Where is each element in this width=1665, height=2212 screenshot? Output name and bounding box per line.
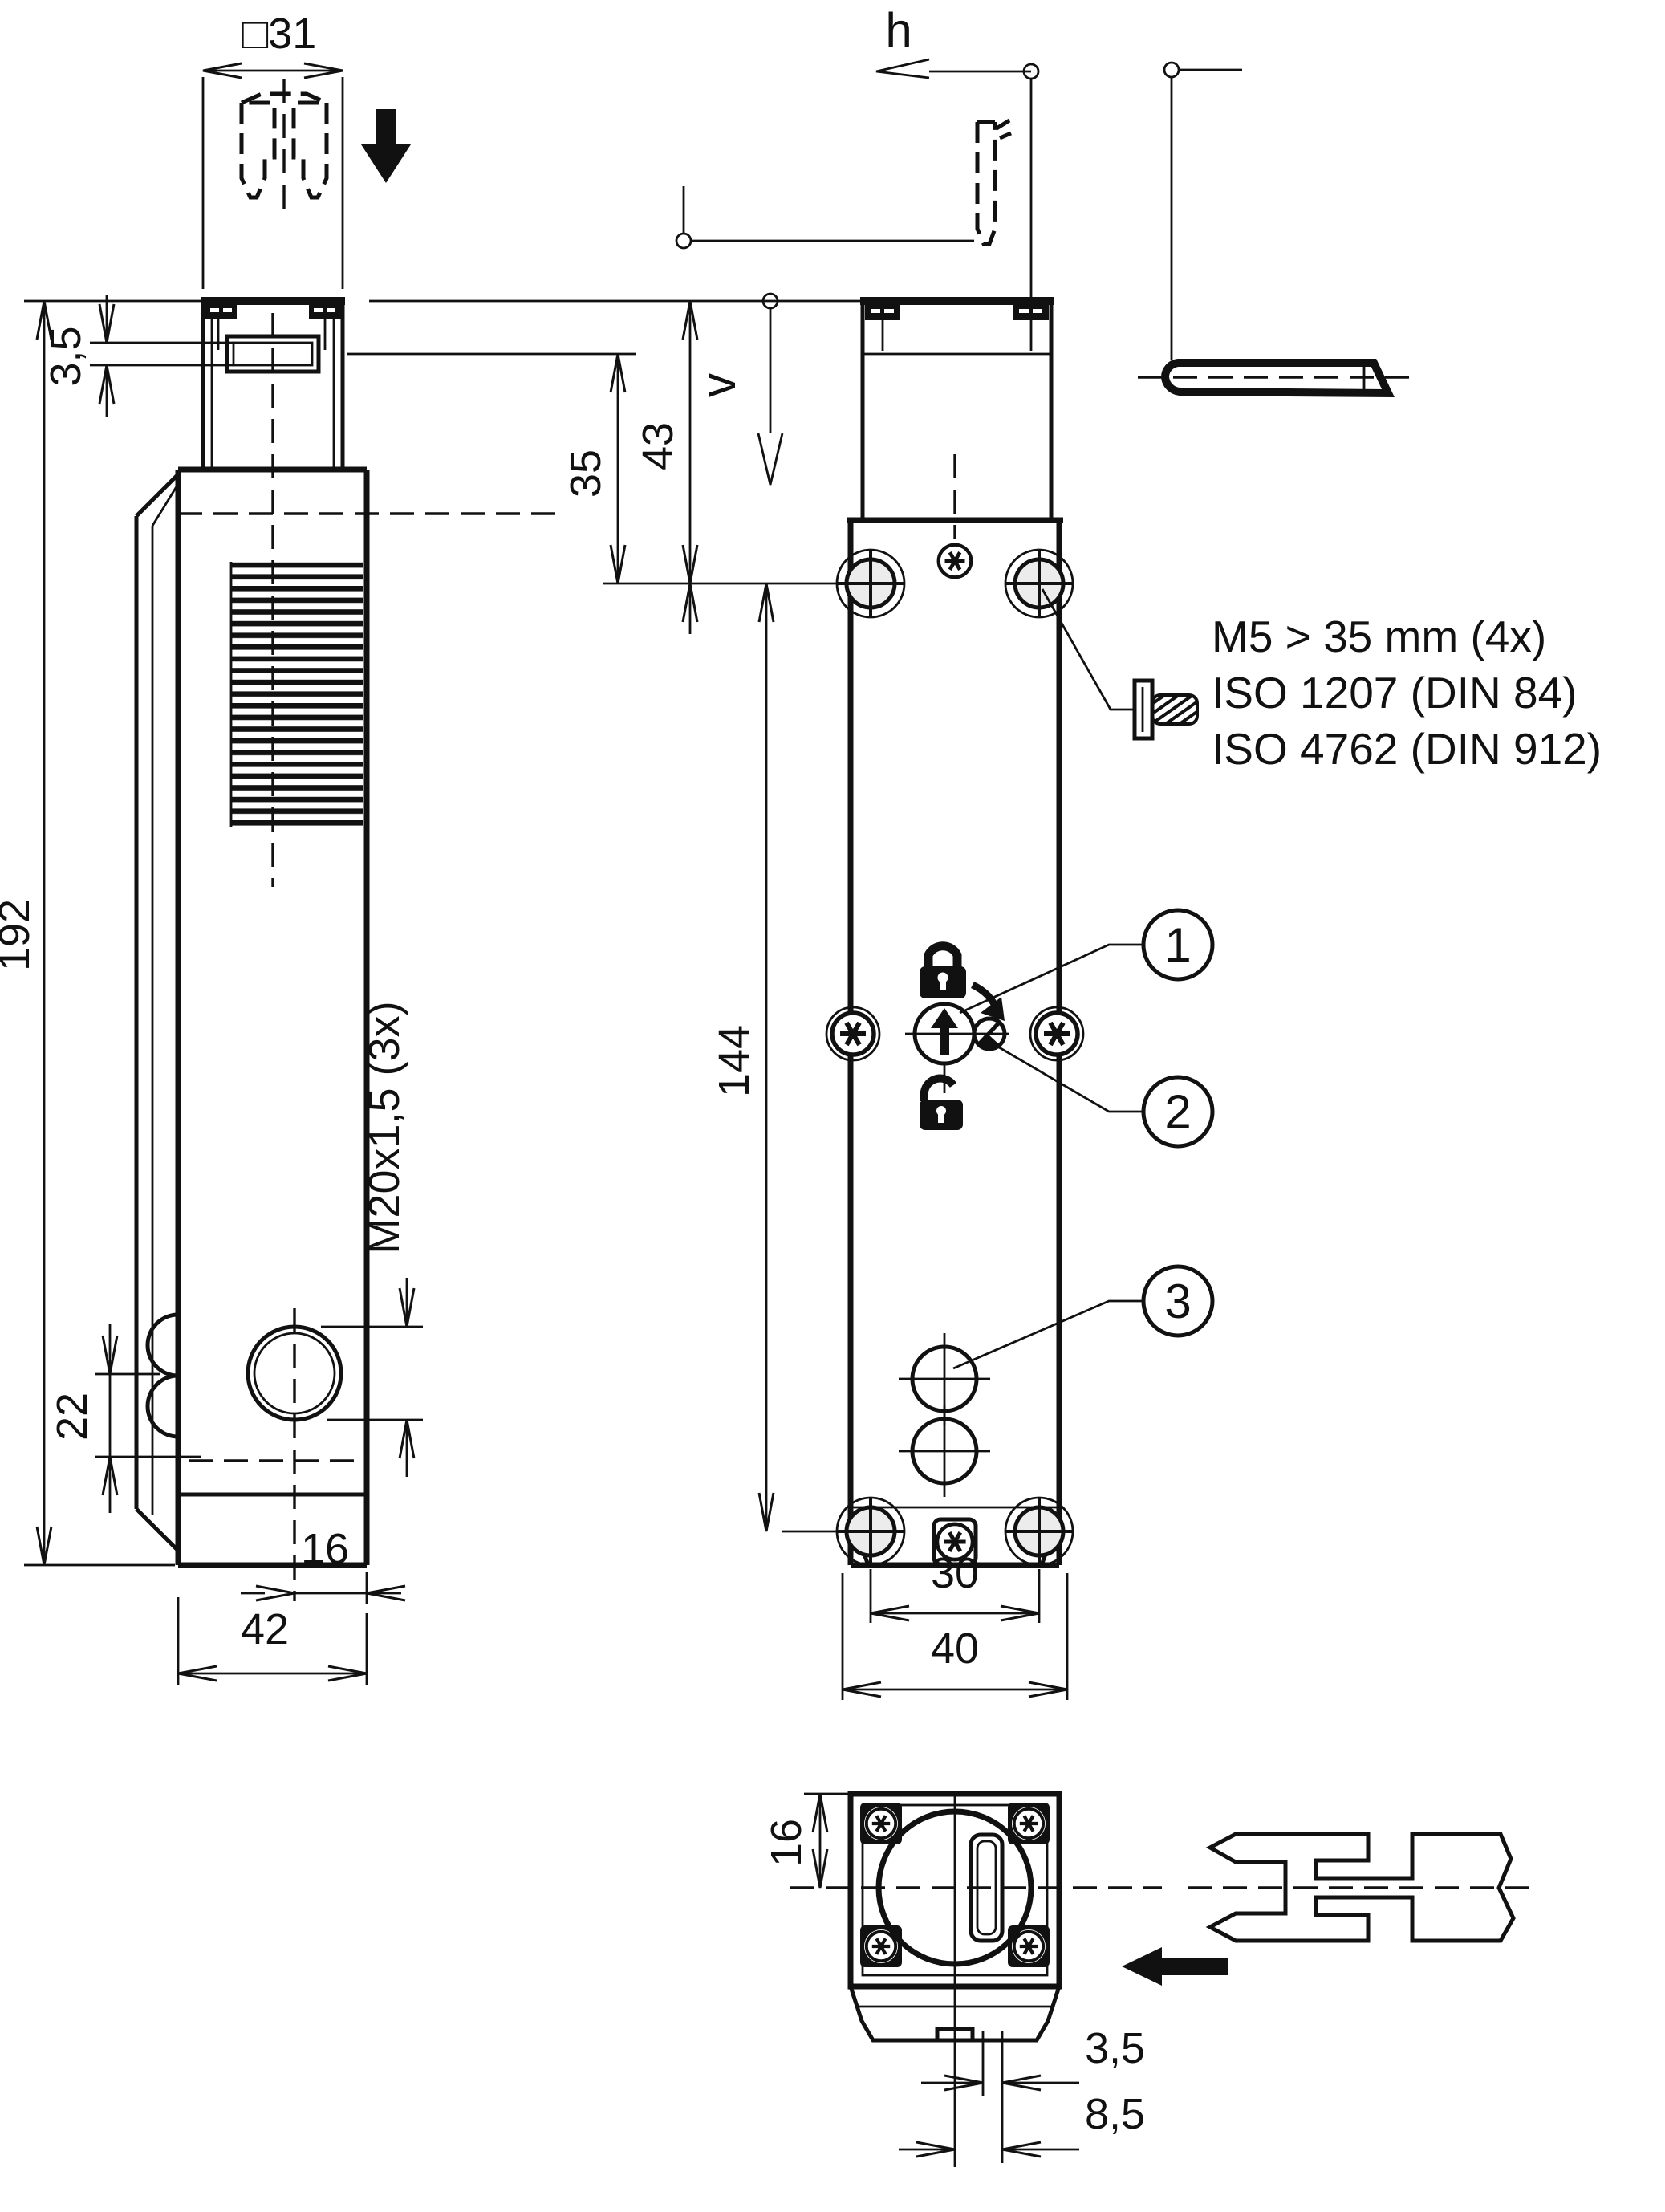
dim-top-to-holes-label: 43	[634, 422, 682, 470]
dim-hole-width-label: 30	[931, 1549, 979, 1597]
head-corner-notch-icon	[865, 303, 1049, 351]
actuator-key-detail	[1188, 1834, 1533, 1941]
heat-fins	[231, 562, 363, 827]
approach-annotations: h v	[676, 3, 1411, 485]
side-screw-icon	[1036, 1013, 1078, 1055]
dim-slot-to-holes-label: 35	[562, 449, 610, 498]
bottom-view: 16 3,5 8,5	[762, 1794, 1533, 2167]
callout-2-label: 2	[1164, 1085, 1191, 1139]
screw-iso1-label: ISO 1207 (DIN 84)	[1212, 668, 1577, 718]
dim-slot-wall-label: 3,5	[1085, 2024, 1145, 2072]
screw-spec-label: M5 > 35 mm (4x)	[1212, 612, 1546, 661]
dim-gland-offset-label: 16	[301, 1525, 349, 1573]
approach-v-label: v	[692, 373, 745, 397]
dimension-drawing-page: □31 3,5	[0, 0, 1665, 2212]
dim-depth-label: 42	[241, 1605, 289, 1653]
callout-3-label: 3	[1164, 1275, 1191, 1328]
callout-1-label: 1	[1164, 918, 1191, 972]
dim-slot-height-label: 3,5	[42, 326, 90, 386]
dim-head-width-label: □31	[242, 10, 317, 58]
dim-slot-offset-label: 8,5	[1085, 2090, 1145, 2138]
side-screw-icon	[832, 1013, 874, 1055]
callouts: 1 2 3	[953, 910, 1212, 1368]
side-view: □31 3,5	[0, 10, 562, 1685]
screw-icon	[1135, 681, 1197, 738]
v-arrow-icon	[758, 433, 782, 485]
h-arrow-icon	[876, 59, 929, 78]
padlock-unlocked-icon	[920, 1079, 963, 1130]
dim-gland-height-label: 22	[48, 1393, 96, 1441]
actuator-plate-side-view	[1138, 363, 1411, 393]
cover-screw-icon	[939, 545, 972, 578]
dim-gland-thread-label: M20x1,5 (3x)	[360, 1001, 408, 1254]
insertion-arrow-icon	[361, 109, 411, 183]
screw-note: M5 > 35 mm (4x) ISO 1207 (DIN 84) ISO 47…	[1042, 589, 1602, 774]
safety-switch-dimension-drawing: □31 3,5	[0, 0, 1665, 2212]
dim-bottom-front-label: 16	[762, 1819, 810, 1867]
insertion-arrow-icon	[1122, 1947, 1228, 1986]
actuator-edge-phantom-icon	[977, 120, 1011, 244]
dim-width-label: 40	[931, 1624, 979, 1673]
front-view: 35 43 144 30 40	[347, 301, 1083, 1700]
dim-hole-spacing-label: 144	[710, 1025, 758, 1097]
padlock-locked-icon	[920, 946, 966, 998]
screw-iso2-label: ISO 4762 (DIN 912)	[1212, 724, 1602, 774]
dim-total-height-label: 192	[0, 899, 39, 971]
approach-h-label: h	[885, 3, 912, 57]
actuator-key-phantom-icon	[242, 79, 327, 215]
mounting-flange	[136, 474, 178, 1551]
